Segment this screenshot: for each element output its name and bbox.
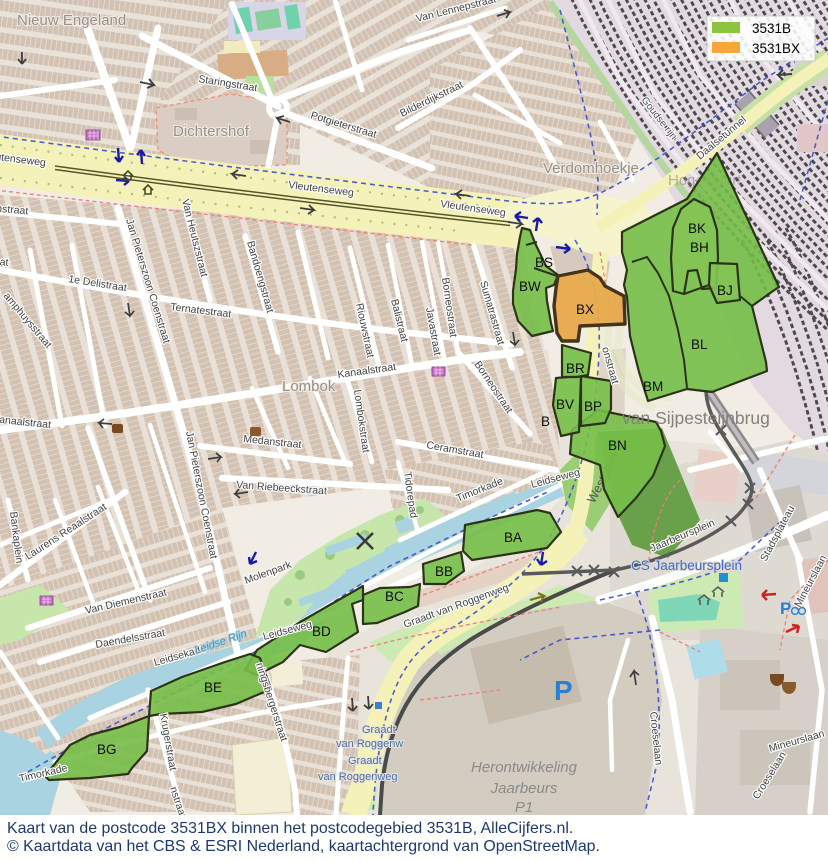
- svg-text:BN: BN: [608, 438, 627, 453]
- svg-text:BJ: BJ: [717, 283, 733, 298]
- svg-text:© Kaartdata van het CBS & ESRI: © Kaartdata van het CBS & ESRI Nederland…: [7, 838, 600, 855]
- svg-text:BW: BW: [519, 279, 541, 294]
- svg-text:van Roggenw: van Roggenw: [336, 738, 403, 750]
- svg-text:Graadt: Graadt: [362, 724, 396, 736]
- svg-text:Lombok: Lombok: [282, 378, 336, 395]
- svg-text:B: B: [541, 414, 550, 429]
- svg-text:BL: BL: [691, 337, 708, 352]
- svg-text:BX: BX: [576, 302, 594, 317]
- svg-text:BC: BC: [385, 589, 404, 604]
- svg-text:BB: BB: [435, 564, 453, 579]
- svg-text:P: P: [780, 599, 791, 618]
- svg-text:3531BX: 3531BX: [752, 41, 800, 56]
- svg-text:van Roggenweg: van Roggenweg: [318, 771, 398, 783]
- svg-text:BR: BR: [566, 361, 585, 376]
- svg-text:BS: BS: [535, 255, 553, 270]
- svg-text:BA: BA: [504, 530, 522, 545]
- svg-text:BK: BK: [688, 221, 706, 236]
- svg-text:CS Jaarbeursplein: CS Jaarbeursplein: [631, 558, 742, 573]
- svg-text:Kaart van de postcode 3531BX b: Kaart van de postcode 3531BX binnen het …: [7, 820, 573, 837]
- svg-text:BP: BP: [584, 399, 602, 414]
- svg-text:BE: BE: [204, 680, 222, 695]
- svg-text:P: P: [554, 675, 573, 706]
- svg-text:BG: BG: [97, 742, 117, 757]
- svg-text:van Sijpesteijnbrug: van Sijpesteijnbrug: [622, 408, 770, 428]
- svg-text:BV: BV: [556, 397, 574, 412]
- svg-text:BH: BH: [690, 240, 709, 255]
- svg-text:Nieuw Engeland: Nieuw Engeland: [17, 12, 126, 29]
- svg-text:BD: BD: [312, 624, 331, 639]
- svg-text:Jaarbeurs: Jaarbeurs: [490, 780, 558, 797]
- svg-text:Herontwikkeling: Herontwikkeling: [471, 759, 578, 776]
- svg-text:BM: BM: [643, 379, 663, 394]
- svg-text:Dichtershof: Dichtershof: [173, 123, 250, 140]
- svg-text:3531B: 3531B: [752, 21, 791, 36]
- svg-text:P1: P1: [515, 799, 533, 816]
- svg-text:Verdomhoekje: Verdomhoekje: [543, 160, 639, 177]
- svg-text:Graadt: Graadt: [348, 755, 382, 767]
